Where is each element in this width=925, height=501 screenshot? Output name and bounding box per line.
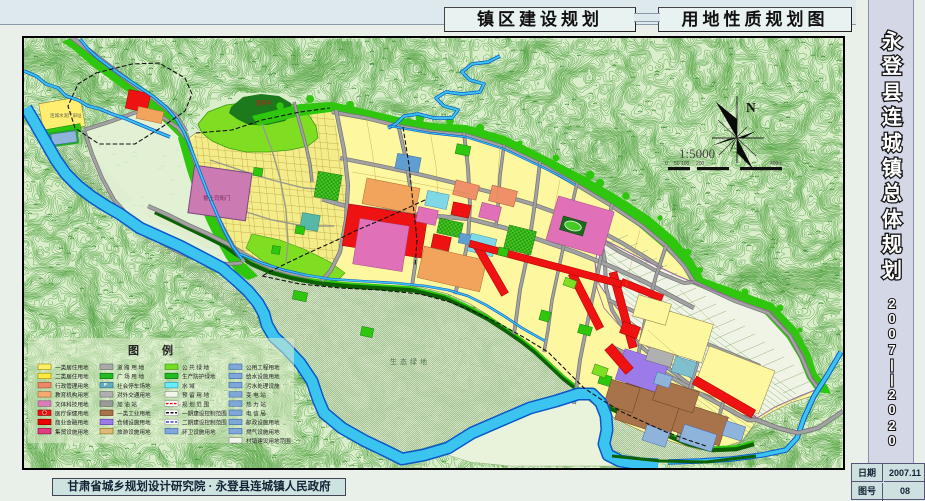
svg-text:环卫设施用地: 环卫设施用地	[182, 428, 216, 436]
svg-text:1:5000: 1:5000	[679, 146, 715, 161]
svg-text:图 例: 图 例	[128, 343, 183, 357]
svg-text:0: 0	[665, 161, 668, 167]
svg-text:热 力 站: 热 力 站	[246, 400, 266, 408]
svg-text:商业金融用地: 商业金融用地	[55, 419, 89, 427]
svg-text:给水设施用地: 给水设施用地	[246, 373, 280, 381]
svg-text:N: N	[746, 100, 756, 115]
svg-text:加 油 站: 加 油 站	[117, 400, 137, 408]
svg-text:村镇建设用地范围: 村镇建设用地范围	[246, 437, 291, 445]
svg-text:教育机构用地: 教育机构用地	[55, 391, 89, 399]
svg-text:二期建设控制范围: 二期建设控制范围	[182, 419, 227, 427]
svg-text:200: 200	[696, 161, 705, 167]
svg-text:一期建设控制范围: 一期建设控制范围	[182, 410, 227, 418]
svg-text:显教寺: 显教寺	[255, 99, 272, 107]
svg-text:邮政设施用地: 邮政设施用地	[246, 419, 280, 427]
svg-text:鲁土司衙门: 鲁土司衙门	[203, 194, 231, 202]
svg-text:生态绿地: 生态绿地	[390, 357, 430, 366]
svg-text:广 场 用 地: 广 场 用 地	[117, 373, 144, 381]
svg-text:电 信 局: 电 信 局	[246, 410, 266, 418]
svg-text:规 划 范 围: 规 划 范 围	[182, 400, 209, 408]
svg-text:二类居住用地: 二类居住用地	[55, 373, 89, 381]
svg-text:行政管理用地: 行政管理用地	[55, 382, 89, 390]
svg-text:仓储设施用地: 仓储设施用地	[117, 419, 151, 427]
svg-text:生产防护绿地: 生产防护绿地	[182, 373, 216, 381]
svg-text:道 路 用 地: 道 路 用 地	[117, 364, 144, 372]
svg-text:400m: 400m	[770, 161, 783, 167]
svg-text:P: P	[104, 382, 107, 387]
svg-text:公 共 绿 地: 公 共 绿 地	[182, 364, 209, 372]
svg-text:公用工程用地: 公用工程用地	[246, 364, 280, 372]
svg-text:对外交通用地: 对外交通用地	[117, 391, 151, 399]
svg-text:连城水泥厂旧址: 连城水泥厂旧址	[50, 112, 82, 119]
svg-text:50 100: 50 100	[674, 161, 690, 167]
svg-text:预 留 用 地: 预 留 用 地	[182, 391, 209, 399]
svg-text:集贸设施用地: 集贸设施用地	[55, 428, 89, 436]
svg-text:变 电 站: 变 电 站	[246, 391, 266, 399]
svg-text:一类工业用地: 一类工业用地	[117, 410, 151, 418]
svg-text:污水处理设施: 污水处理设施	[246, 382, 280, 390]
svg-text:文体科技用地: 文体科技用地	[55, 400, 89, 408]
svg-text:医疗保健用地: 医疗保健用地	[55, 410, 89, 418]
svg-text:燃气设施用地: 燃气设施用地	[246, 428, 280, 436]
svg-text:旅游设施用地: 旅游设施用地	[117, 428, 151, 436]
svg-text:一类居住用地: 一类居住用地	[55, 364, 89, 372]
svg-text:水 域: 水 域	[182, 382, 195, 390]
svg-text:社会停车场地: 社会停车场地	[117, 382, 151, 390]
